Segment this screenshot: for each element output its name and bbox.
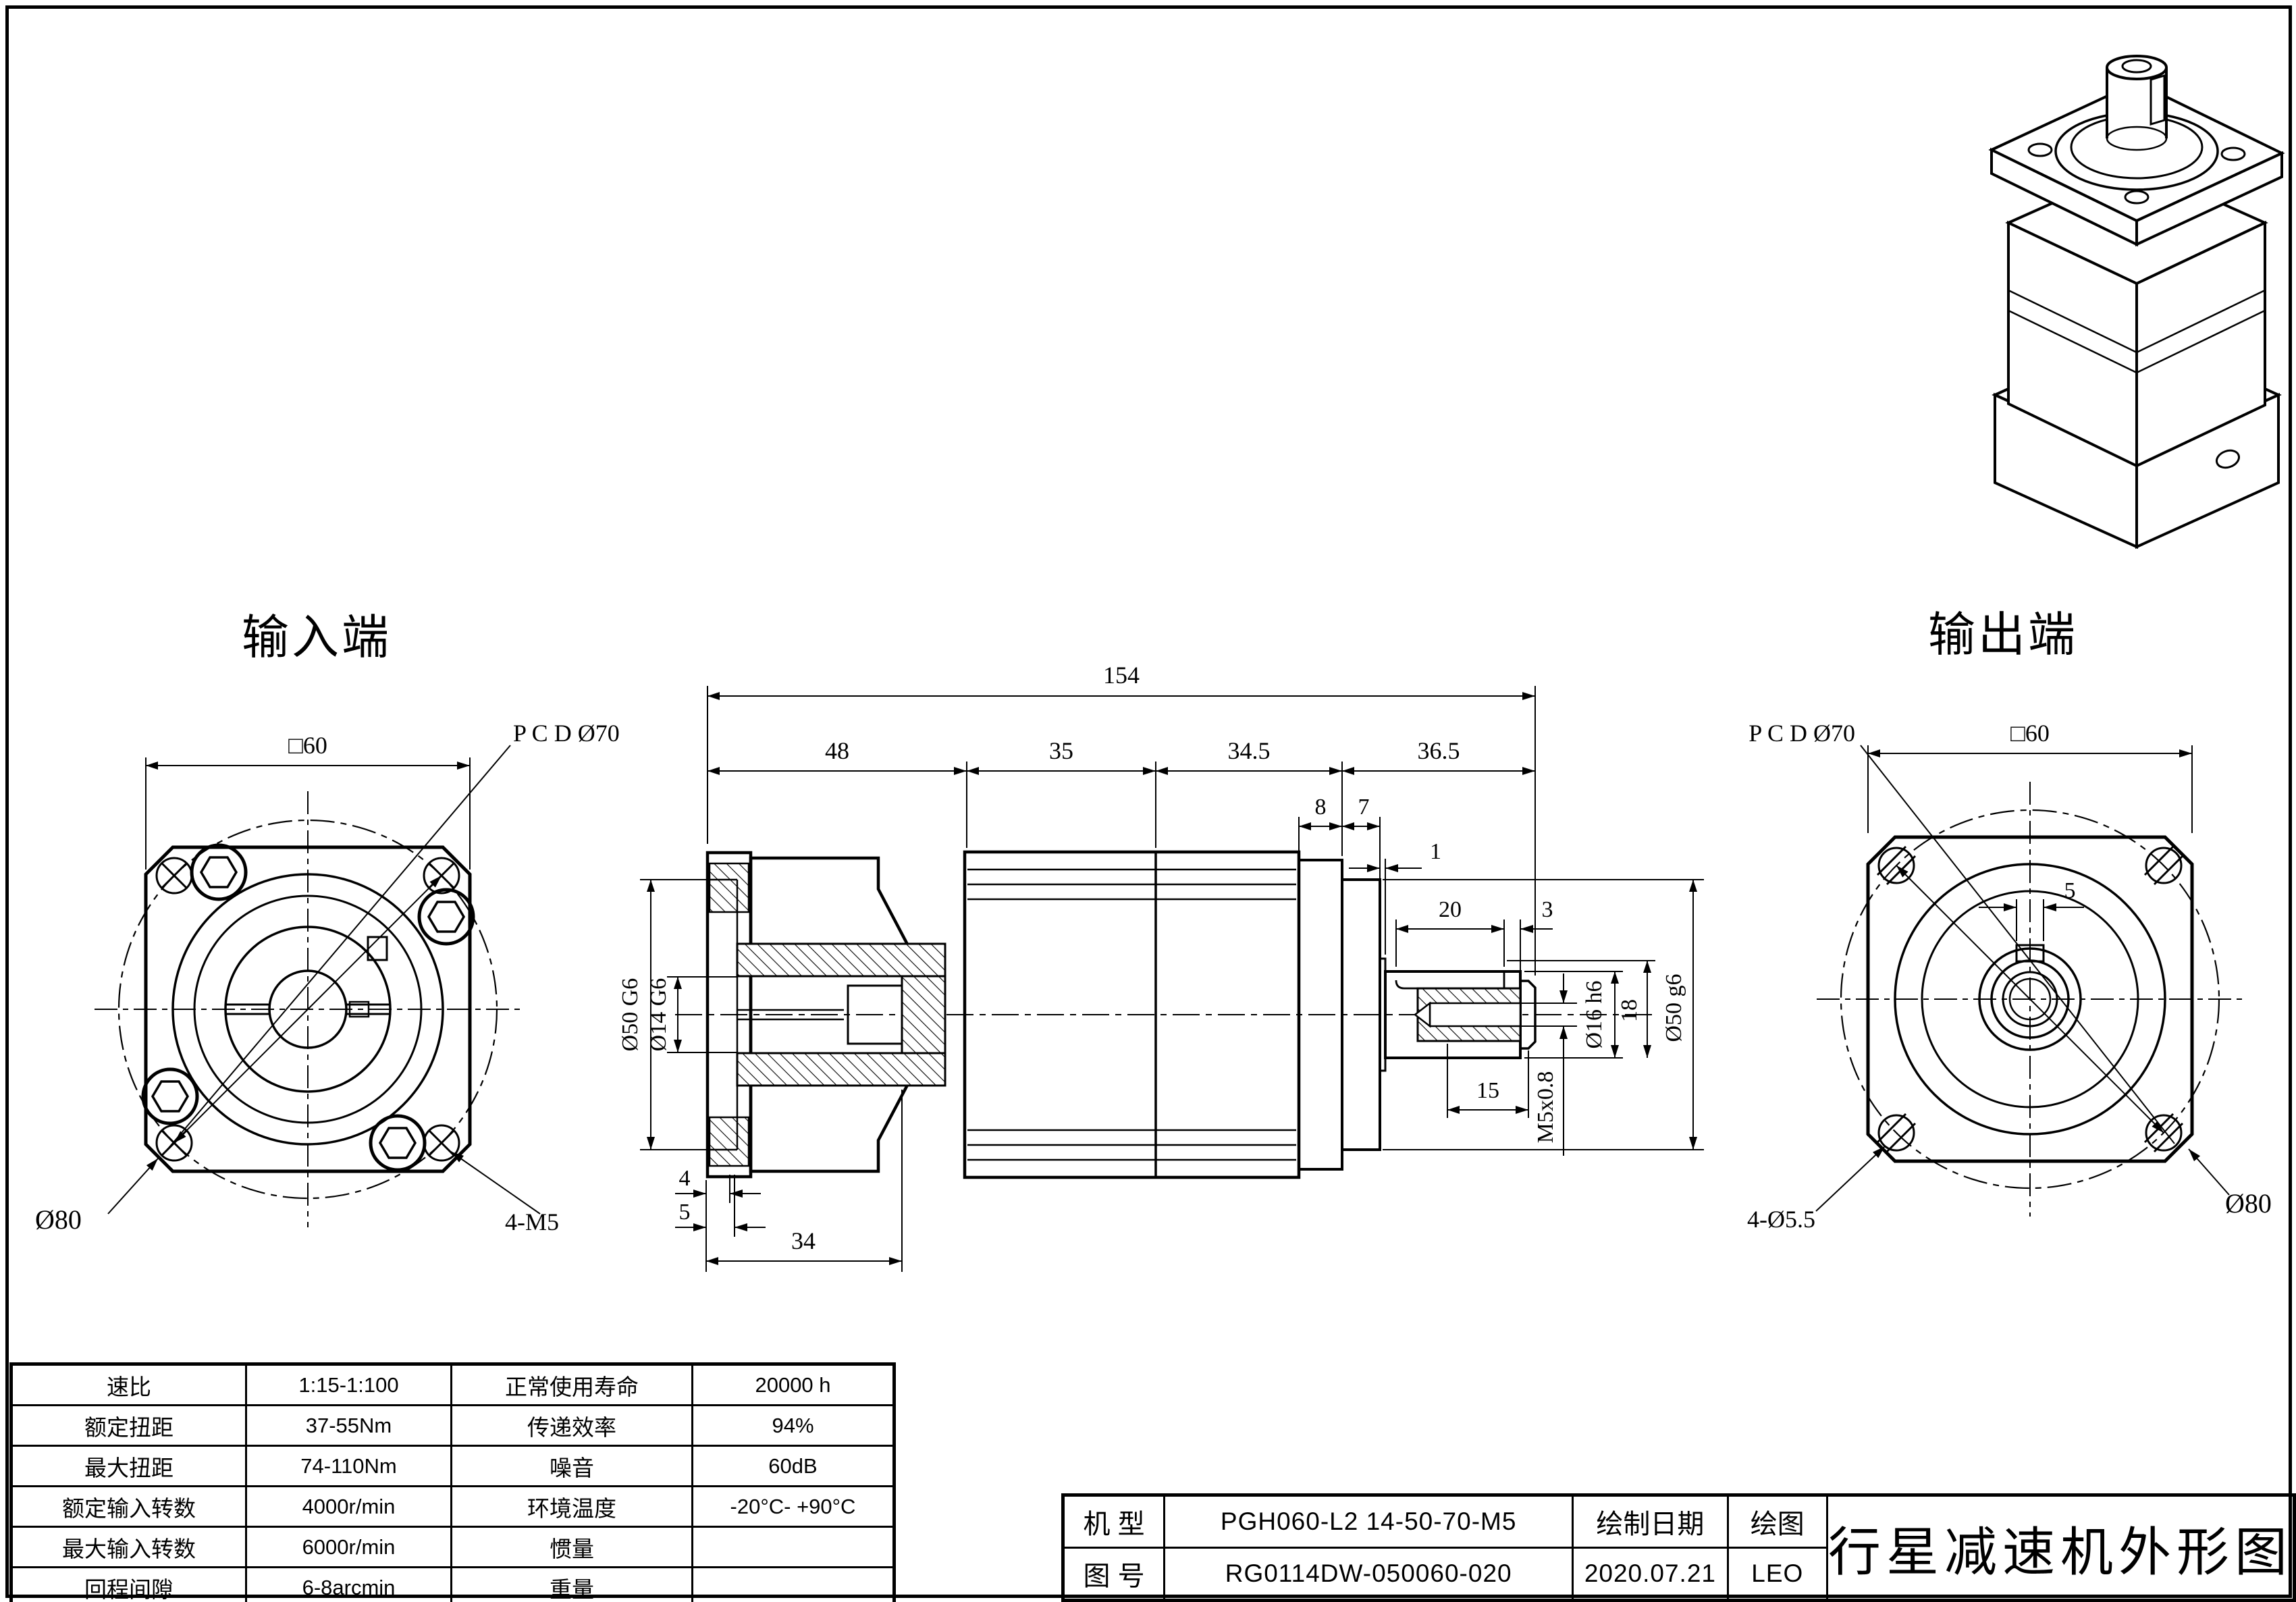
dim-output-holes: 4-Ø5.5 bbox=[1747, 1206, 1815, 1233]
drawing-title: 行星减速机外形图 bbox=[1827, 1495, 2294, 1601]
spec-row: 最大输入转数 6000r/min 惯量 bbox=[11, 1527, 895, 1568]
spec-label: 最大扭距 bbox=[11, 1446, 246, 1487]
title-block: 机 型 PGH060-L2 14-50-70-M5 绘制日期 绘图 行星减速机外… bbox=[1061, 1493, 2296, 1602]
drawing-sheet: 输入端 输出端 bbox=[0, 0, 2296, 1602]
spec-value: 4000r/min bbox=[246, 1487, 452, 1527]
dim-input-holes: 4-M5 bbox=[505, 1208, 559, 1235]
dim-input-pcd: P C D Ø70 bbox=[513, 720, 620, 747]
dim-d4: 4 bbox=[679, 1166, 691, 1191]
section-view: 154 48 35 34.5 36.5 8 7 1 bbox=[618, 662, 1704, 1272]
spec-label: 惯量 bbox=[452, 1527, 693, 1568]
isometric-view bbox=[1992, 56, 2282, 547]
spec-value: 6000r/min bbox=[246, 1527, 452, 1568]
dim-front-spigot: Ø50 G6 bbox=[618, 978, 643, 1052]
dim-d34: 34 bbox=[791, 1227, 816, 1254]
spec-value bbox=[693, 1568, 895, 1602]
dim-output-outer-dia: Ø80 bbox=[2225, 1188, 2272, 1219]
dim-d7: 7 bbox=[1358, 795, 1370, 820]
date-label: 绘制日期 bbox=[1573, 1495, 1728, 1548]
spec-value: 37-55Nm bbox=[246, 1406, 452, 1446]
dim-total-length: 154 bbox=[1103, 662, 1140, 689]
dim-seg-34-5: 34.5 bbox=[1228, 737, 1271, 764]
spec-value: 20000 h bbox=[693, 1364, 895, 1406]
spec-row: 最大扭距 74-110Nm 噪音 60dB bbox=[11, 1446, 895, 1487]
spec-label: 最大输入转数 bbox=[11, 1527, 246, 1568]
spec-label: 噪音 bbox=[452, 1446, 693, 1487]
spec-row: 回程间隙 6-8arcmin 重量 bbox=[11, 1568, 895, 1602]
dim-input-bore: Ø14 G6 bbox=[646, 978, 671, 1052]
dim-output-key-width: 5 bbox=[2064, 878, 2076, 903]
drawing-no-value: RG0114DW-050060-020 bbox=[1165, 1548, 1573, 1601]
drawing-no-label: 图 号 bbox=[1063, 1548, 1165, 1601]
spec-label: 传递效率 bbox=[452, 1406, 693, 1446]
spec-value: 94% bbox=[693, 1406, 895, 1446]
input-end-view: □60 P C D Ø70 Ø80 4-M5 bbox=[35, 720, 620, 1235]
dim-d5: 5 bbox=[679, 1200, 691, 1225]
dim-output-pcd: P C D Ø70 bbox=[1748, 720, 1855, 747]
spec-label: 回程间隙 bbox=[11, 1568, 246, 1602]
spec-label: 额定输入转数 bbox=[11, 1487, 246, 1527]
dim-rear-spigot: Ø50 g6 bbox=[1661, 973, 1686, 1042]
model-value: PGH060-L2 14-50-70-M5 bbox=[1165, 1495, 1573, 1548]
spec-value bbox=[693, 1527, 895, 1568]
dim-d8: 8 bbox=[1315, 795, 1327, 820]
model-label: 机 型 bbox=[1063, 1495, 1165, 1548]
output-end-view: □60 5 P C D Ø70 4-Ø5.5 Ø80 bbox=[1747, 720, 2272, 1233]
spec-value: 60dB bbox=[693, 1446, 895, 1487]
dim-input-outer-dia: Ø80 bbox=[35, 1204, 82, 1235]
dim-output-square: □60 bbox=[2010, 720, 2050, 747]
spec-label: 额定扭距 bbox=[11, 1406, 246, 1446]
dim-seg-35: 35 bbox=[1049, 737, 1073, 764]
spec-label: 环境温度 bbox=[452, 1487, 693, 1527]
dim-thread: M5x0.8 bbox=[1533, 1071, 1558, 1144]
dim-thread-depth: 15 bbox=[1476, 1078, 1499, 1103]
spec-value: 74-110Nm bbox=[246, 1446, 452, 1487]
spec-value: -20°C- +90°C bbox=[693, 1487, 895, 1527]
dim-d18: 18 bbox=[1617, 999, 1642, 1022]
spec-row: 额定输入转数 4000r/min 环境温度 -20°C- +90°C bbox=[11, 1487, 895, 1527]
drawn-label: 绘图 bbox=[1728, 1495, 1827, 1548]
spec-label: 正常使用寿命 bbox=[452, 1364, 693, 1406]
dim-seg-48: 48 bbox=[825, 737, 849, 764]
spec-label: 速比 bbox=[11, 1364, 246, 1406]
spec-label: 重量 bbox=[452, 1568, 693, 1602]
spec-value: 6-8arcmin bbox=[246, 1568, 452, 1602]
dim-input-square: □60 bbox=[288, 732, 327, 759]
date-value: 2020.07.21 bbox=[1573, 1548, 1728, 1601]
spec-value: 1:15-1:100 bbox=[246, 1364, 452, 1406]
dim-d1: 1 bbox=[1430, 839, 1441, 864]
dim-shaft-dia: Ø16 h6 bbox=[1582, 980, 1607, 1048]
drawn-by-value: LEO bbox=[1728, 1548, 1827, 1601]
spec-table: 速比 1:15-1:100 正常使用寿命 20000 h 额定扭距 37-55N… bbox=[9, 1362, 896, 1602]
dim-key-length: 20 bbox=[1439, 897, 1462, 922]
spec-row: 速比 1:15-1:100 正常使用寿命 20000 h bbox=[11, 1364, 895, 1406]
spec-row: 额定扭距 37-55Nm 传递效率 94% bbox=[11, 1406, 895, 1446]
dim-d3: 3 bbox=[1542, 897, 1553, 922]
dim-seg-36-5: 36.5 bbox=[1418, 737, 1460, 764]
